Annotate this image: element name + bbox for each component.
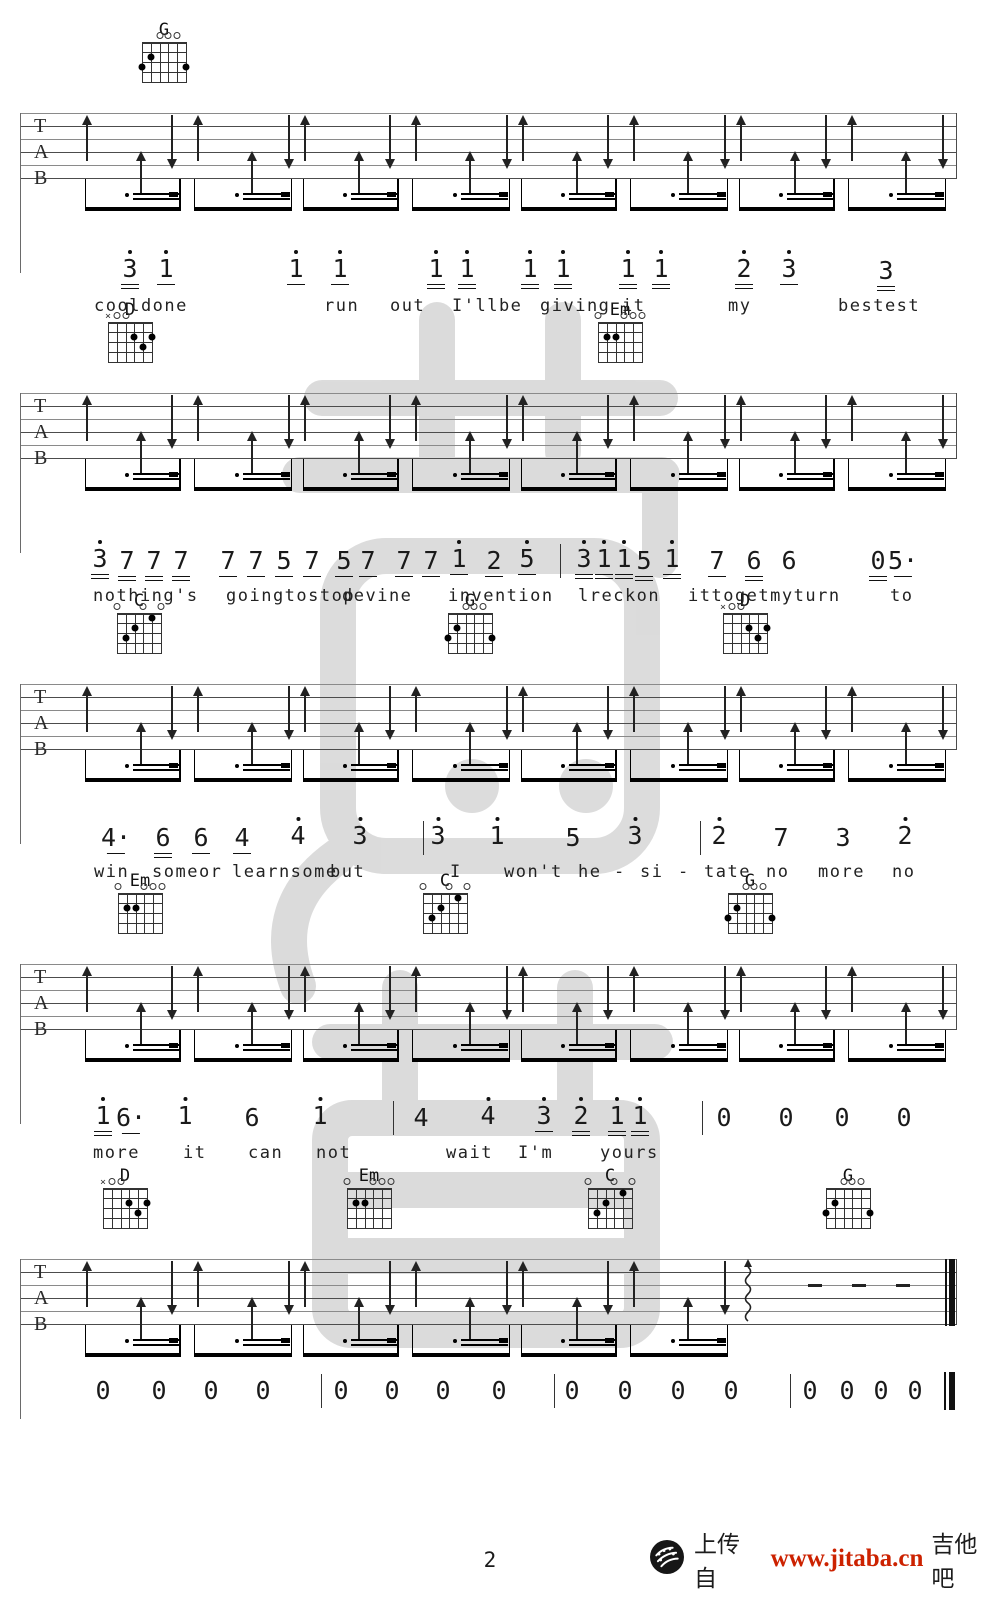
- strum-down-arrowhead-icon: [720, 1305, 730, 1315]
- rhythm-beam-16th: [787, 769, 833, 771]
- strum-down-arrow: [942, 115, 944, 159]
- arpeggio-squiggle-icon: [741, 1257, 755, 1327]
- tab-letter-T: T: [34, 1262, 46, 1282]
- rhythm-beam: [521, 207, 617, 211]
- duration-underline: [91, 574, 109, 576]
- strum-down-arrowhead-icon: [603, 1010, 613, 1020]
- rhythm-beam-16th: [351, 1344, 397, 1346]
- jianpu-note: 7: [219, 548, 237, 577]
- staff-line: [20, 126, 956, 127]
- note-number: 1: [620, 254, 635, 283]
- note-number: 1: [609, 1101, 624, 1130]
- lyric-word: won't: [504, 864, 563, 881]
- note-number: 2: [711, 821, 726, 850]
- rhythm-beam: [739, 778, 835, 782]
- rhythm-dot: [235, 473, 239, 477]
- finger-dot: [603, 334, 610, 341]
- note-number: 0: [716, 1103, 731, 1132]
- strum-up-arrowhead-icon: [683, 1297, 693, 1307]
- jianpu-note: 6: [745, 548, 763, 581]
- open-string-mark: [117, 1178, 124, 1185]
- jianpu-note: 1: [615, 540, 633, 579]
- rhythm-beam-16th: [351, 769, 397, 771]
- strum-up-arrowhead-icon: [629, 686, 639, 696]
- rhythm-beam-16th: [133, 1049, 179, 1051]
- strum-down-arrowhead-icon: [284, 159, 294, 169]
- strum-up-arrowhead-icon: [193, 115, 203, 125]
- strum-up-arrow: [633, 123, 635, 161]
- open-string-mark: [156, 32, 163, 39]
- strum-up-arrow: [86, 1269, 88, 1307]
- strum-down-arrowhead-icon: [821, 730, 831, 740]
- jianpu-note: 0: [564, 1378, 579, 1403]
- finger-dot: [602, 1200, 609, 1207]
- strum-down-arrow: [171, 115, 173, 159]
- duration-underline: [335, 576, 353, 578]
- system-right-barline: [956, 113, 957, 179]
- jianpu-note: 2: [485, 548, 503, 577]
- strum-down-arrowhead-icon: [502, 1010, 512, 1020]
- rhythm-beam-16th: [133, 478, 179, 480]
- finger-dot: [131, 625, 138, 632]
- rhythm-dot: [343, 193, 347, 197]
- rhythm-beam-16th: [787, 1049, 833, 1051]
- lyric-word: ittogetmyturn: [688, 588, 841, 605]
- jianpu-note: 0: [873, 1378, 888, 1403]
- strum-up-arrowhead-icon: [736, 966, 746, 976]
- strum-up-arrow: [633, 694, 635, 732]
- strum-up-arrow: [197, 694, 199, 732]
- final-barline: [944, 1372, 946, 1410]
- strum-up-short-arrow: [358, 730, 360, 764]
- rhythm-beam-16th: [569, 478, 615, 480]
- rhythm-beam: [194, 778, 292, 782]
- jianpu-note: 0: [333, 1378, 348, 1403]
- finger-dot: [149, 334, 156, 341]
- jianpu-note: 6: [192, 825, 210, 854]
- rhythm-dot: [671, 193, 675, 197]
- lyric-word: invention: [448, 588, 554, 605]
- rhythm-dot: [343, 1339, 347, 1343]
- rhythm-beam-16th: [569, 198, 615, 200]
- note-number: 7: [709, 546, 724, 575]
- finger-dot: [823, 1210, 830, 1217]
- jianpu-note: 2: [572, 1097, 590, 1136]
- chord-fret-line: [826, 1188, 871, 1190]
- rhythm-beam: [739, 1058, 835, 1062]
- duration-underline: [247, 576, 265, 578]
- jianpu-note: 7: [145, 548, 163, 581]
- chord-fret-line: [448, 643, 493, 644]
- system-right-barline: [956, 393, 957, 459]
- lyric-word: bestest: [838, 298, 920, 315]
- note-number: 0: [896, 1103, 911, 1132]
- duration-underline: [608, 1135, 626, 1137]
- strum-up-arrowhead-icon: [901, 722, 911, 732]
- rhythm-beam-16th: [461, 478, 508, 480]
- strum-up-arrowhead-icon: [354, 1297, 364, 1307]
- strum-down-arrowhead-icon: [821, 439, 831, 449]
- open-string-mark: [849, 1178, 856, 1185]
- rhythm-flag-block: [169, 1043, 178, 1048]
- staff-line: [20, 684, 956, 685]
- note-number: 0: [839, 1376, 854, 1405]
- jianpu-note: 7: [118, 548, 136, 581]
- duration-underline: [635, 580, 653, 582]
- rhythm-dot: [889, 473, 893, 477]
- jianpu-note: 0: [896, 1105, 911, 1130]
- system-left-barline: [20, 684, 21, 844]
- measure-barline: [790, 1374, 791, 1408]
- chord-fret-line: [723, 623, 768, 624]
- finger-dot: [769, 915, 776, 922]
- rhythm-dot: [889, 193, 893, 197]
- duration-underline: [518, 574, 536, 576]
- note-number: 6: [155, 823, 170, 852]
- jianpu-note: 0: [384, 1378, 399, 1403]
- strum-down-arrowhead-icon: [284, 1010, 294, 1020]
- lyric-word: nothing's: [93, 588, 199, 605]
- note-number: 3: [835, 823, 850, 852]
- rhythm-dot: [235, 1044, 239, 1048]
- strum-up-arrowhead-icon: [629, 395, 639, 405]
- strum-up-arrowhead-icon: [247, 1297, 257, 1307]
- jianpu-note: 2: [735, 250, 753, 289]
- lyric-word: giving: [540, 298, 610, 315]
- page-number: 2: [470, 1548, 510, 1572]
- strum-down-arrowhead-icon: [167, 730, 177, 740]
- chord-fret-line: [117, 613, 162, 615]
- guitar-pick-icon: [648, 1538, 686, 1581]
- strum-up-arrow: [633, 1269, 635, 1307]
- jianpu-note: 4: [480, 1097, 495, 1128]
- note-number: 7: [360, 546, 375, 575]
- strum-down-arrow: [171, 395, 173, 439]
- chord-diagram-G: [826, 1188, 871, 1228]
- open-string-mark: [344, 1178, 351, 1185]
- duration-underline: [121, 288, 139, 290]
- strum-up-arrowhead-icon: [354, 722, 364, 732]
- lyric-word: can: [248, 1145, 283, 1162]
- finger-dot: [132, 905, 139, 912]
- duration-underline: [631, 1135, 649, 1137]
- finger-dot: [122, 635, 129, 642]
- duration-underline: [122, 1133, 140, 1135]
- chord-diagram-C: [588, 1188, 633, 1228]
- strum-down-arrow: [942, 686, 944, 730]
- strum-down-arrow: [506, 686, 508, 730]
- strum-up-arrowhead-icon: [411, 686, 421, 696]
- music-root: TABGTABD×EmTABCGD×TABEmCGTABD×EmCG311111…: [0, 0, 1000, 1600]
- note-number: 1: [489, 821, 504, 850]
- chord-fret-line: [118, 923, 163, 924]
- duration-underline: [427, 288, 445, 290]
- strum-up-short-arrow: [576, 159, 578, 193]
- rhythm-beam-16th: [243, 1049, 290, 1051]
- lyric-word: si: [640, 864, 663, 881]
- lyric-word: my: [728, 298, 751, 315]
- open-string-mark: [165, 32, 172, 39]
- rhythm-dot: [453, 193, 457, 197]
- strum-down-arrowhead-icon: [720, 439, 730, 449]
- note-number: 1: [288, 254, 303, 283]
- open-string-mark: [742, 883, 749, 890]
- note-number: 2: [736, 254, 751, 283]
- note-number: 4: [413, 1103, 428, 1132]
- strum-up-short-arrow: [140, 439, 142, 473]
- strum-up-arrow: [851, 974, 853, 1012]
- rhythm-dot: [671, 473, 675, 477]
- chord-fret-line: [117, 623, 162, 624]
- open-string-mark: [858, 1178, 865, 1185]
- rhythm-beam: [630, 778, 728, 782]
- jianpu-note: 1: [619, 250, 637, 289]
- rhythm-beam: [85, 487, 181, 491]
- rhythm-beam: [848, 1058, 946, 1062]
- open-string-mark: [629, 1178, 636, 1185]
- augmentation-dot: ·: [131, 1103, 146, 1132]
- chord-diagram-C: [117, 613, 162, 653]
- staff-line: [20, 458, 956, 459]
- rhythm-beam: [194, 207, 292, 211]
- finger-dot: [455, 895, 462, 902]
- lyric-word: I'm: [518, 1145, 553, 1162]
- chord-fret-line: [142, 82, 187, 83]
- note-number: 3: [122, 254, 137, 283]
- chord-fret-line: [103, 1218, 148, 1219]
- duration-underline: [735, 288, 753, 290]
- rhythm-flag-block: [823, 1043, 832, 1048]
- rhythm-beam: [521, 487, 617, 491]
- strum-up-arrowhead-icon: [518, 395, 528, 405]
- note-number: 4: [480, 1101, 495, 1130]
- duration-underline: [118, 580, 136, 582]
- rhythm-dot: [125, 1339, 129, 1343]
- rhythm-dot: [889, 1044, 893, 1048]
- rhythm-beam-16th: [679, 478, 726, 480]
- strum-down-arrowhead-icon: [502, 1305, 512, 1315]
- note-number: 0: [670, 1376, 685, 1405]
- jianpu-note: 7: [773, 825, 788, 850]
- strum-up-arrowhead-icon: [847, 966, 857, 976]
- chord-diagram-D: ×: [723, 613, 768, 653]
- note-number: 0: [491, 1376, 506, 1405]
- rest-dash: [808, 1284, 822, 1287]
- rhythm-beam: [848, 487, 946, 491]
- jianpu-note: 7: [303, 548, 321, 577]
- duration-underline: [595, 578, 613, 580]
- sheet-page: TABGTABD×EmTABCGD×TABEmCGTABD×EmCG311111…: [0, 0, 1000, 1600]
- strum-up-short-arrow: [469, 730, 471, 764]
- duration-underline: [877, 290, 895, 292]
- note-number: 7: [119, 546, 134, 575]
- jianpu-note: 7: [172, 548, 190, 581]
- strum-down-arrow: [724, 966, 726, 1010]
- final-barline-thick: [949, 1259, 955, 1326]
- strum-up-short-arrow: [794, 439, 796, 473]
- chord-fret-line: [588, 1218, 633, 1219]
- note-number: 7: [423, 546, 438, 575]
- jianpu-note: 0: [802, 1378, 817, 1403]
- note-number: 1: [428, 254, 443, 283]
- strum-down-arrow: [288, 686, 290, 730]
- strum-up-arrowhead-icon: [683, 722, 693, 732]
- strum-up-arrowhead-icon: [193, 1261, 203, 1271]
- strum-up-arrowhead-icon: [901, 431, 911, 441]
- rhythm-beam-16th: [679, 769, 726, 771]
- strum-up-arrowhead-icon: [465, 1297, 475, 1307]
- strum-down-arrowhead-icon: [821, 159, 831, 169]
- tab-letter-B: B: [34, 1314, 47, 1334]
- duration-underline: [145, 576, 163, 578]
- chord-fret-line: [728, 933, 773, 934]
- strum-up-arrowhead-icon: [629, 966, 639, 976]
- lyric-word: out: [390, 298, 425, 315]
- strum-down-arrowhead-icon: [938, 1010, 948, 1020]
- strum-up-arrow: [415, 974, 417, 1012]
- chord-fret-line: [723, 643, 768, 644]
- staff-line: [20, 977, 956, 978]
- duration-underline: [554, 288, 572, 290]
- duration-underline: [619, 288, 637, 290]
- duration-underline: [521, 284, 539, 286]
- strum-down-arrow: [506, 395, 508, 439]
- note-number: 7: [396, 546, 411, 575]
- note-number: 5: [565, 823, 580, 852]
- rhythm-beam: [194, 487, 292, 491]
- rhythm-flag-block: [717, 192, 726, 197]
- rhythm-beam-16th: [569, 1049, 615, 1051]
- rhythm-flag-block: [387, 1043, 396, 1048]
- jianpu-note: 3: [352, 817, 367, 848]
- duration-underline: [154, 853, 172, 855]
- open-string-mark: [141, 883, 148, 890]
- rhythm-dot: [561, 764, 565, 768]
- jianpu-note: 6: [244, 1105, 259, 1130]
- chord-fret-line: [108, 362, 153, 363]
- strum-up-arrowhead-icon: [300, 395, 310, 405]
- strum-up-short-arrow: [251, 730, 253, 764]
- rhythm-flag-block: [387, 1338, 396, 1343]
- chord-fret-line: [118, 893, 163, 895]
- strum-down-arrowhead-icon: [821, 1010, 831, 1020]
- rhythm-beam: [303, 1058, 399, 1062]
- lyric-word: tate: [704, 864, 751, 881]
- lyric-word: he: [578, 864, 601, 881]
- jianpu-note: 0: [95, 1378, 110, 1403]
- tab-letter-B: B: [34, 1019, 47, 1039]
- jianpu-note: 1: [287, 250, 305, 285]
- tab-letter-T: T: [34, 967, 46, 987]
- rhythm-beam-16th: [461, 1049, 508, 1051]
- note-number: 7: [304, 546, 319, 575]
- rhythm-flag-block: [823, 763, 832, 768]
- strum-down-arrow: [724, 686, 726, 730]
- tab-letter-A: A: [34, 993, 48, 1013]
- finger-dot: [620, 1190, 627, 1197]
- strum-down-arrow: [506, 115, 508, 159]
- finger-dot: [361, 1200, 368, 1207]
- staff-line: [20, 432, 956, 433]
- rhythm-beam: [630, 1353, 728, 1357]
- rhythm-flag-block: [169, 472, 178, 477]
- chord-fret-line: [448, 633, 493, 634]
- strum-up-short-arrow: [576, 1010, 578, 1044]
- duration-underline: [615, 574, 633, 576]
- strum-down-arrowhead-icon: [385, 1010, 395, 1020]
- strum-up-short-arrow: [358, 439, 360, 473]
- strum-up-arrow: [415, 1269, 417, 1307]
- strum-up-arrowhead-icon: [518, 1261, 528, 1271]
- rhythm-flag-block: [169, 763, 178, 768]
- note-number: 2: [486, 546, 501, 575]
- strum-down-arrowhead-icon: [603, 439, 613, 449]
- rhythm-flag-block: [387, 192, 396, 197]
- strum-up-arrowhead-icon: [901, 1002, 911, 1012]
- strum-up-arrow: [304, 1269, 306, 1307]
- strum-up-arrow: [415, 694, 417, 732]
- lyric-word: no: [892, 864, 915, 881]
- strum-up-arrowhead-icon: [300, 115, 310, 125]
- system-left-barline: [20, 1259, 21, 1419]
- strum-down-arrow: [288, 966, 290, 1010]
- rhythm-beam: [630, 487, 728, 491]
- strum-up-arrowhead-icon: [518, 115, 528, 125]
- chord-fret-line: [103, 1228, 148, 1229]
- rhythm-beam: [848, 778, 946, 782]
- note-number: 1: [653, 254, 668, 283]
- strum-down-arrowhead-icon: [167, 159, 177, 169]
- rhythm-beam-16th: [679, 1049, 726, 1051]
- tab-letter-A: A: [34, 422, 48, 442]
- note-number: 6: [193, 823, 208, 852]
- strum-up-arrow: [86, 974, 88, 1012]
- note-number: 0: [333, 1376, 348, 1405]
- rhythm-beam-16th: [243, 1344, 290, 1346]
- rhythm-dot: [343, 473, 347, 477]
- site-url[interactable]: www.jitaba.cn: [771, 1545, 924, 1573]
- rhythm-flag-block: [499, 472, 508, 477]
- rhythm-beam: [412, 1353, 510, 1357]
- rhythm-flag-block: [823, 472, 832, 477]
- strum-up-arrow: [740, 694, 742, 732]
- finger-dot: [831, 1200, 838, 1207]
- staff-line: [20, 1016, 956, 1017]
- lyric-word: no: [766, 864, 789, 881]
- duration-underline: [663, 578, 681, 580]
- note-number: 1: [332, 254, 347, 283]
- rhythm-beam: [85, 207, 181, 211]
- note-number: 6: [244, 1103, 259, 1132]
- rhythm-beam: [303, 778, 399, 782]
- lyric-word: run: [324, 298, 359, 315]
- strum-up-arrow: [415, 403, 417, 441]
- rhythm-flag-block: [605, 1338, 614, 1343]
- lyric-word: -: [678, 864, 690, 881]
- strum-up-short-arrow: [251, 1305, 253, 1339]
- duration-underline: [427, 284, 445, 286]
- jianpu-note: 3: [627, 817, 642, 848]
- duration-underline: [894, 576, 912, 578]
- lyric-word: learnsome: [232, 864, 338, 881]
- tab-letter-T: T: [34, 396, 46, 416]
- jianpu-note: 0: [834, 1105, 849, 1130]
- lyric-word: but: [330, 864, 365, 881]
- lyric-word: wait: [446, 1145, 493, 1162]
- strum-up-short-arrow: [469, 439, 471, 473]
- jianpu-note: 3: [535, 1097, 553, 1132]
- duration-underline: [287, 284, 305, 286]
